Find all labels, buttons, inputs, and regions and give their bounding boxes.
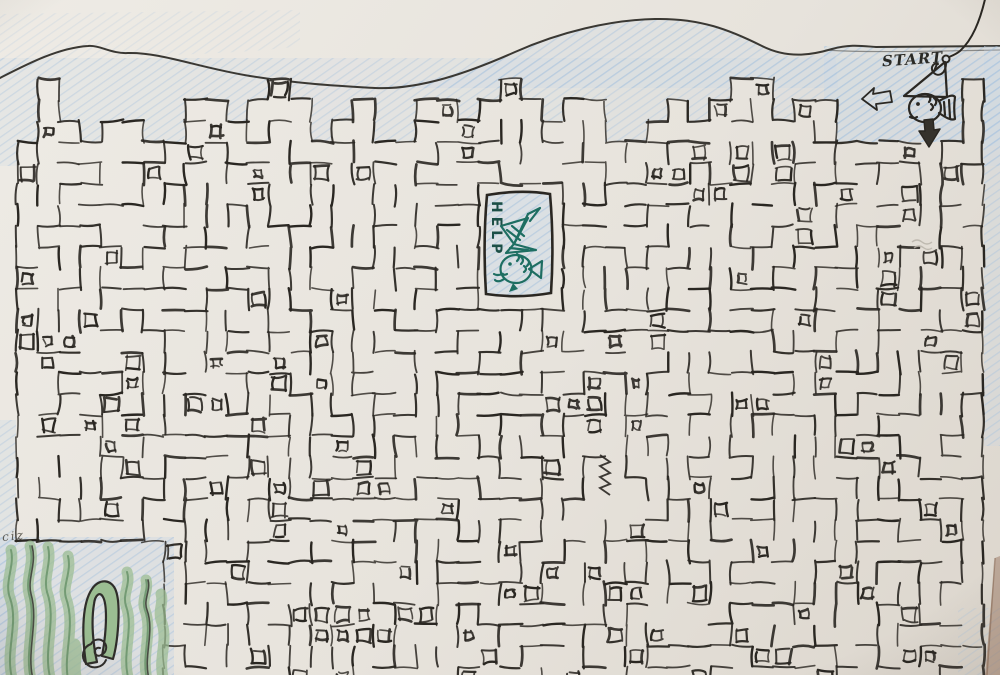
maze-artwork <box>0 0 1000 675</box>
help-label: HELP <box>488 201 504 257</box>
corner-scribble: ciz <box>1 528 25 544</box>
photo-of-hand-drawn-fish-maze: START HELP ciz <box>0 0 1000 675</box>
photo-vignette <box>0 0 1000 675</box>
